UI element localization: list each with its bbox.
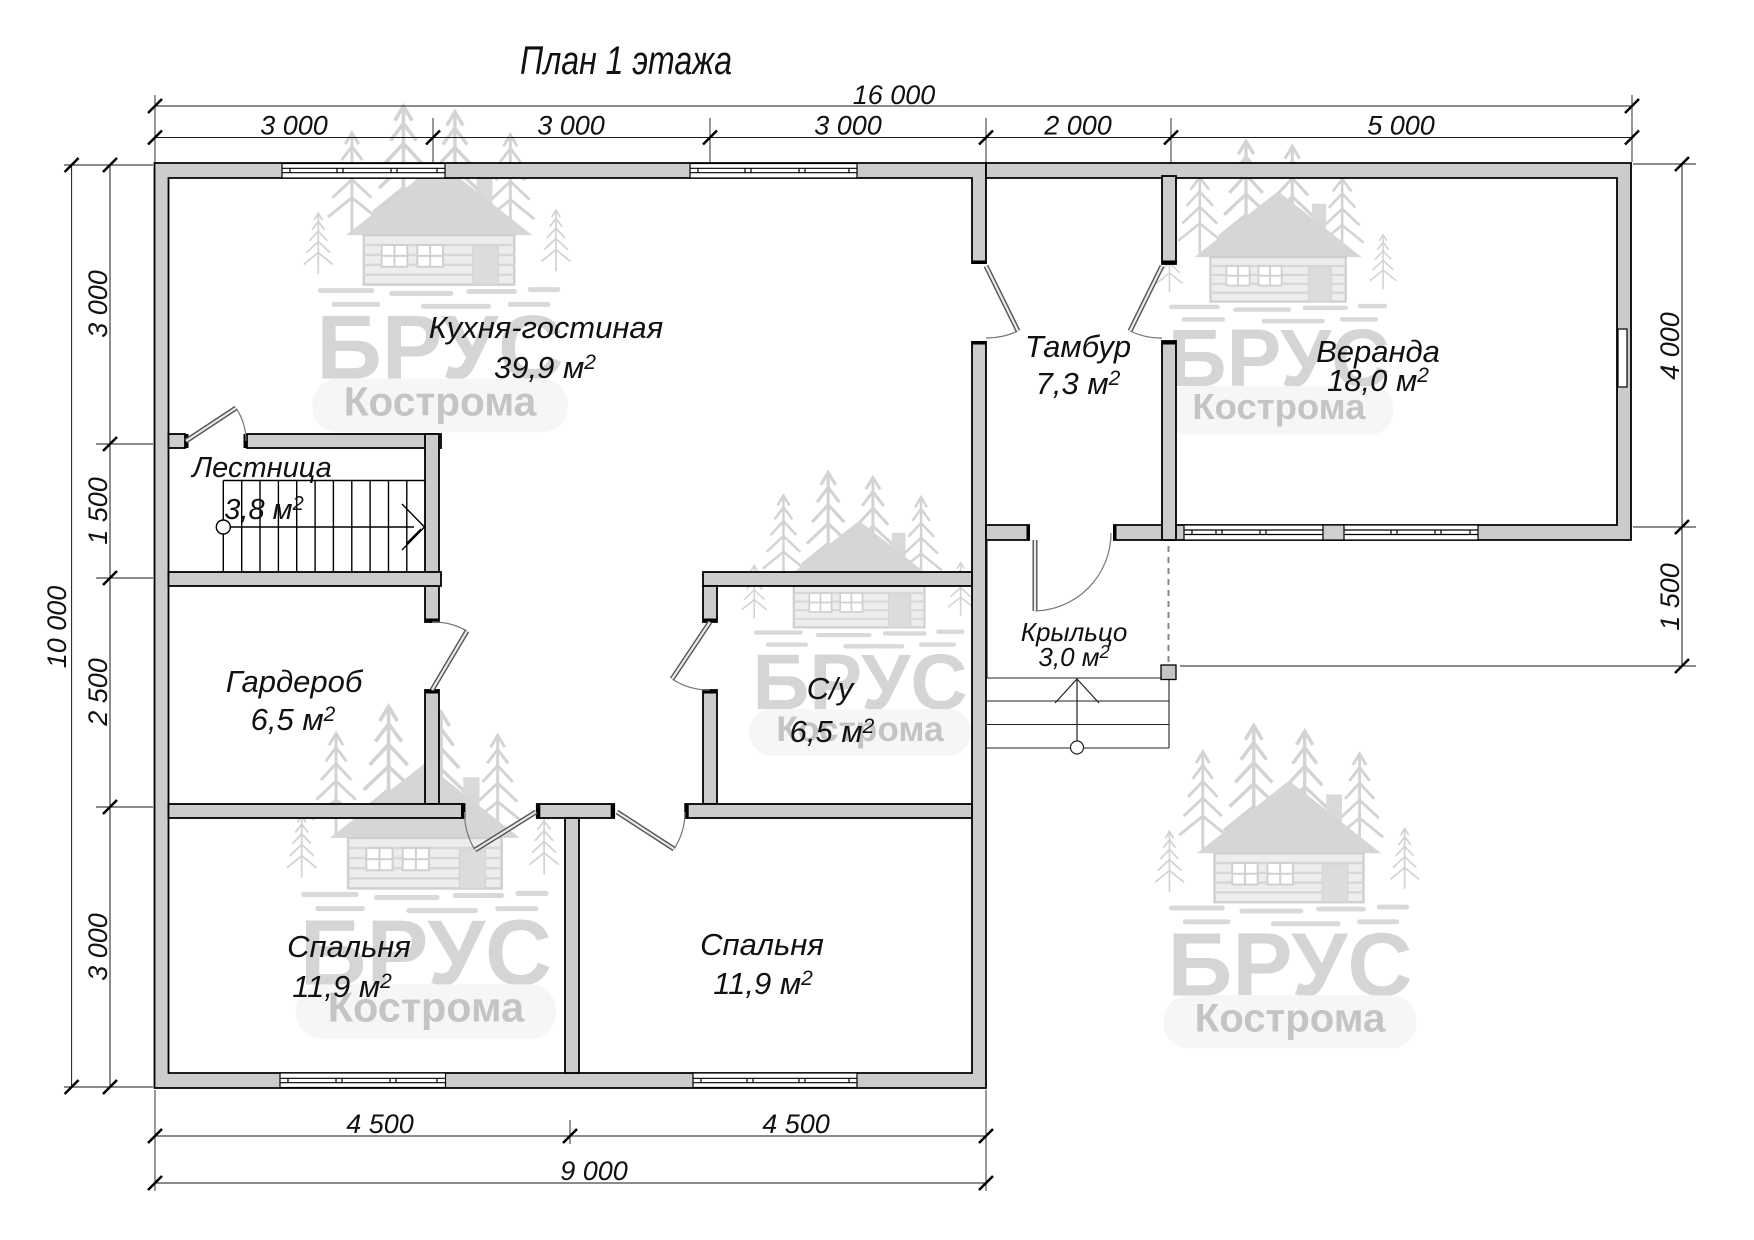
svg-text:3,0 м2: 3,0 м2 [1038, 642, 1109, 672]
svg-text:16 000: 16 000 [853, 80, 936, 110]
svg-text:С/у: С/у [807, 671, 856, 706]
svg-text:5 000: 5 000 [1367, 111, 1435, 141]
svg-text:План 1 этажа: План 1 этажа [520, 39, 732, 83]
svg-text:3 000: 3 000 [814, 111, 882, 141]
svg-text:6,5 м2: 6,5 м2 [790, 714, 875, 749]
svg-text:10 000: 10 000 [42, 586, 72, 669]
svg-text:Лестница: Лестница [190, 452, 331, 484]
svg-text:Спальня: Спальня [700, 927, 824, 962]
svg-text:4 500: 4 500 [762, 1109, 830, 1139]
svg-text:1 500: 1 500 [83, 477, 113, 545]
svg-text:4 000: 4 000 [1655, 312, 1685, 380]
svg-text:3 000: 3 000 [537, 111, 605, 141]
svg-text:39,9 м2: 39,9 м2 [494, 350, 596, 385]
svg-text:9 000: 9 000 [560, 1156, 628, 1186]
svg-text:2 000: 2 000 [1043, 111, 1112, 141]
svg-text:4 500: 4 500 [346, 1109, 414, 1139]
svg-text:11,9 м2: 11,9 м2 [292, 969, 392, 1004]
svg-text:3 000: 3 000 [260, 111, 328, 141]
svg-text:3 000: 3 000 [83, 913, 113, 981]
svg-text:6,5 м2: 6,5 м2 [251, 702, 336, 737]
svg-text:Спальня: Спальня [287, 929, 411, 964]
svg-text:1 500: 1 500 [1655, 563, 1685, 631]
svg-text:7,3 м2: 7,3 м2 [1036, 366, 1121, 401]
svg-text:Гардероб: Гардероб [226, 664, 364, 699]
svg-text:Тамбур: Тамбур [1025, 329, 1131, 364]
svg-text:3,8 м2: 3,8 м2 [224, 493, 303, 526]
svg-text:3 000: 3 000 [83, 270, 113, 338]
svg-text:11,9 м2: 11,9 м2 [713, 966, 813, 1001]
svg-text:Кухня-гостиная: Кухня-гостиная [429, 310, 663, 345]
svg-text:2 500: 2 500 [83, 658, 113, 727]
svg-text:18,0 м2: 18,0 м2 [1327, 363, 1429, 398]
